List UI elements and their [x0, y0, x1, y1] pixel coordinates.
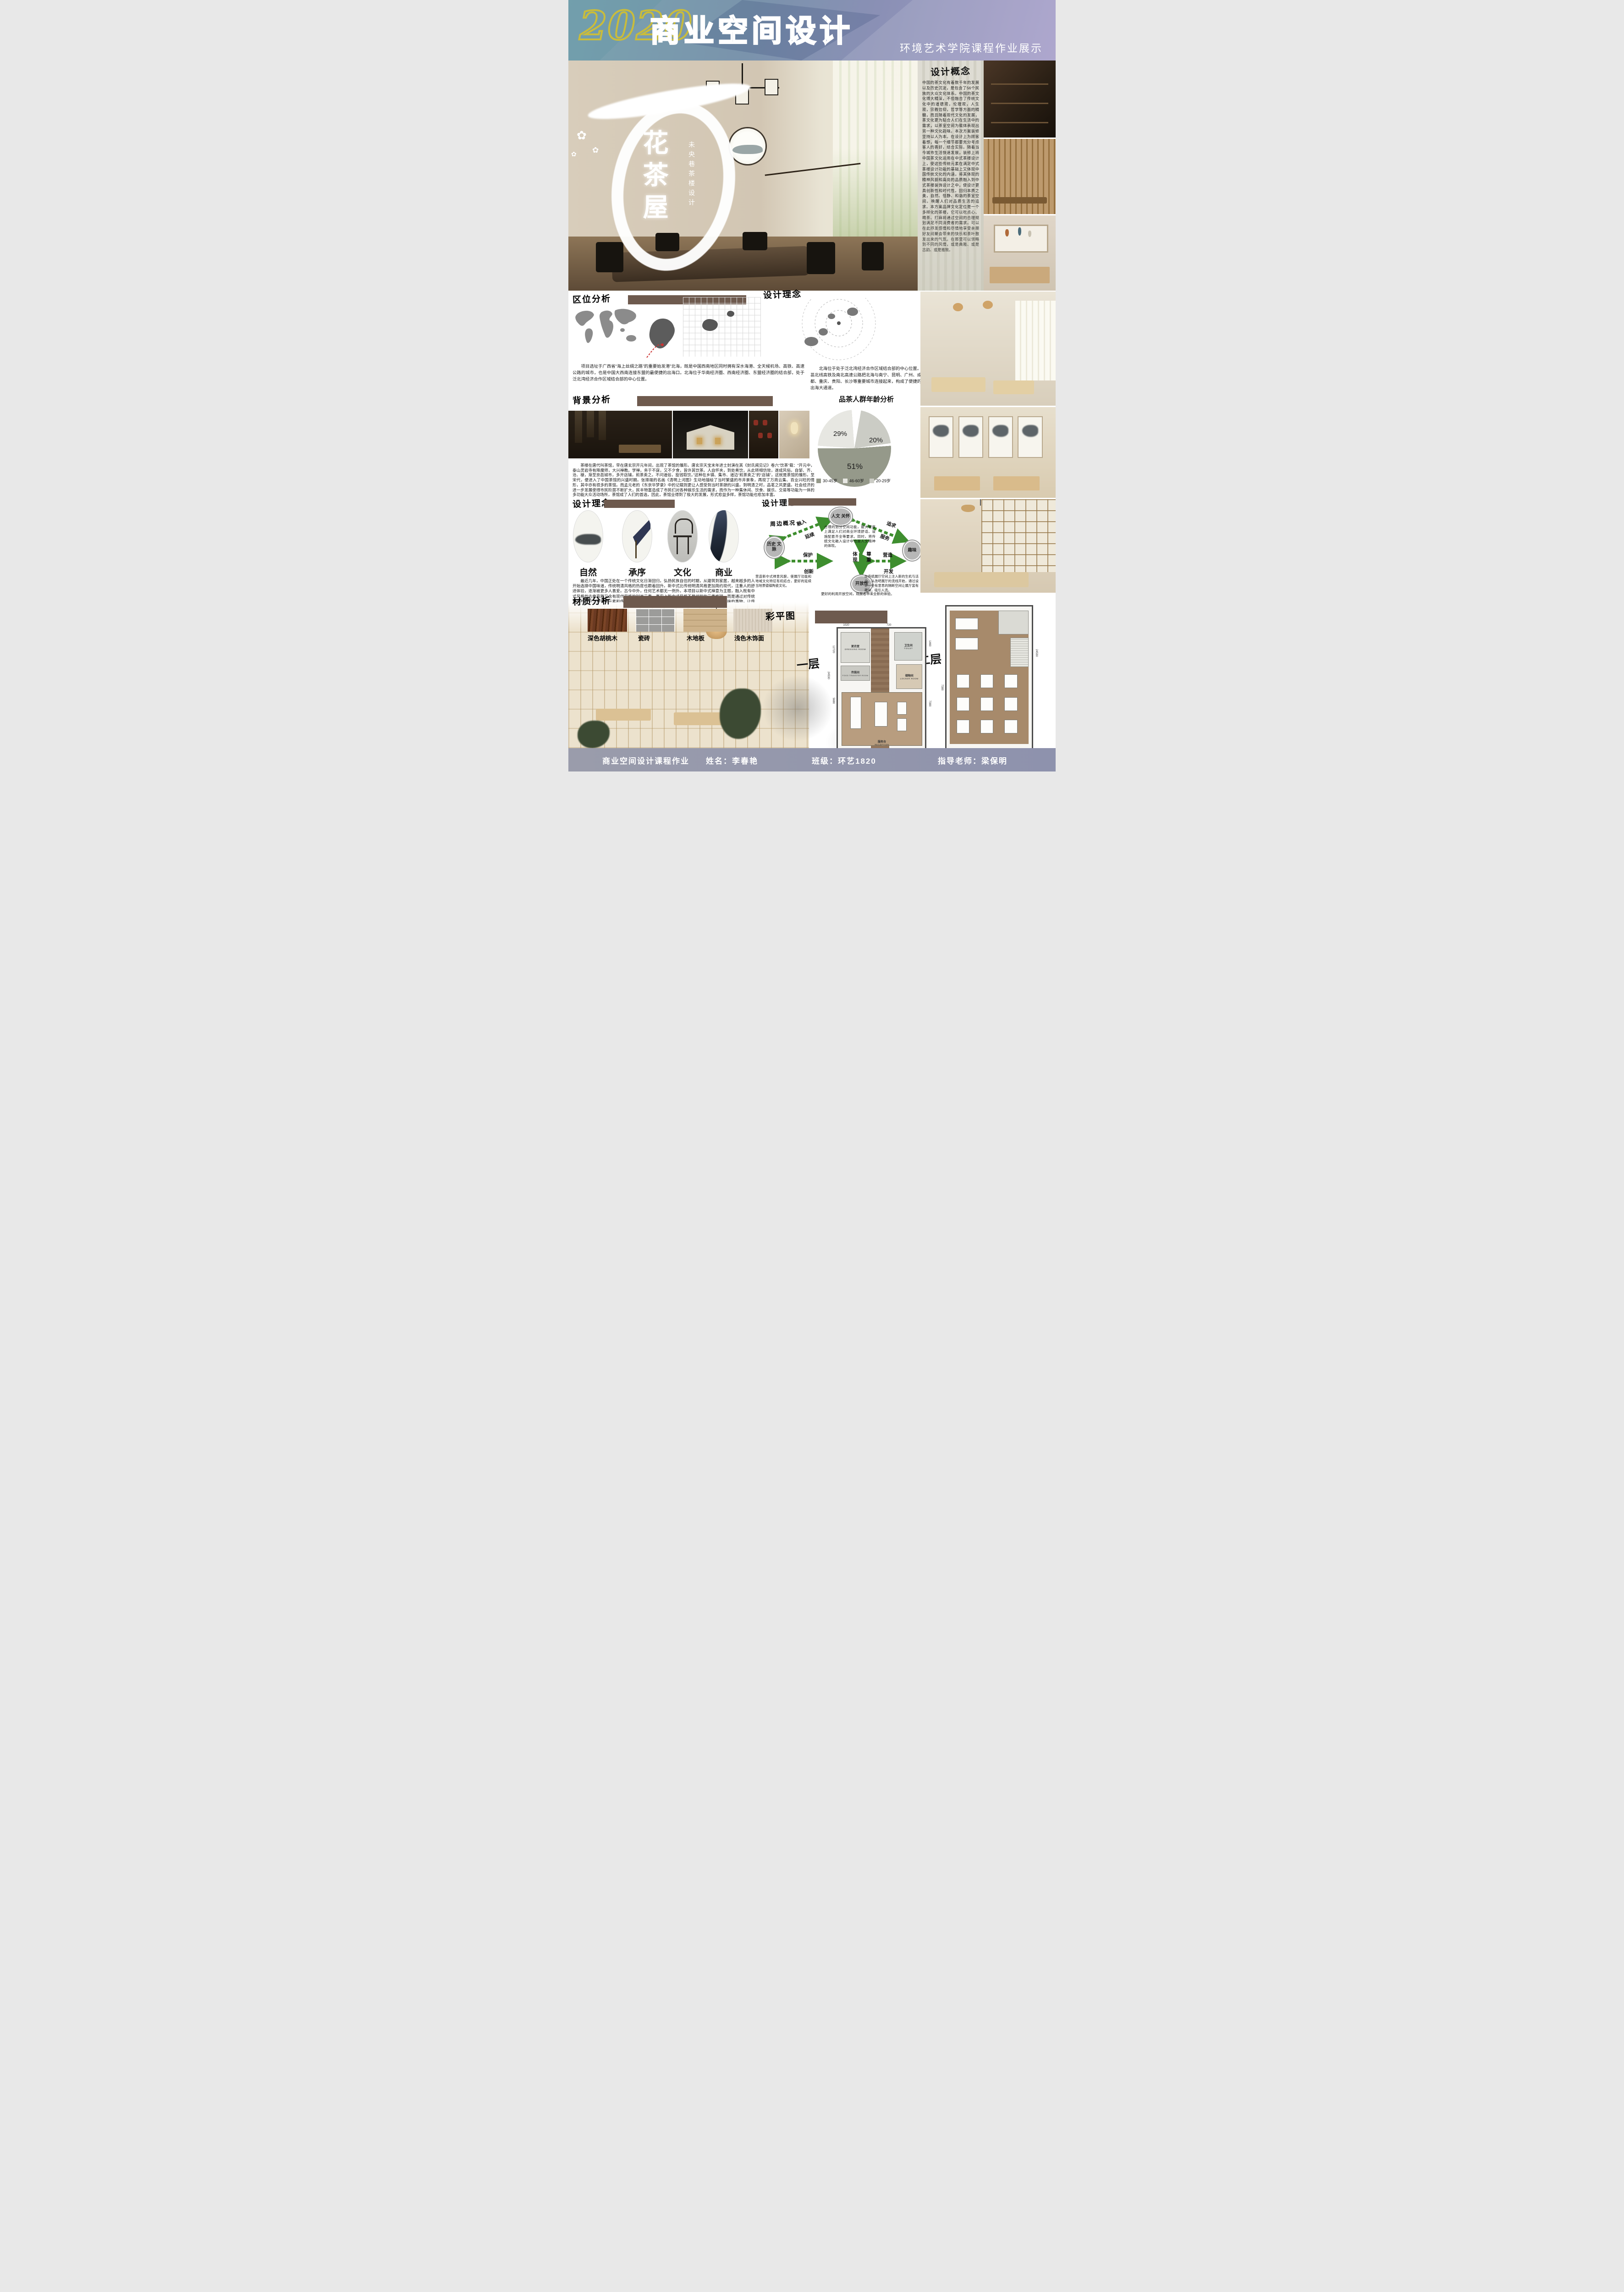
footer-student-name: 姓名：李春艳 [706, 755, 758, 766]
dimension: 24530 [827, 672, 830, 679]
hanging-banner [599, 411, 606, 440]
region-grid-map [683, 297, 761, 357]
section-heading-materials: 材质分析 [573, 594, 611, 608]
photo-teahouse-hall [568, 411, 672, 458]
diagram-left-note: 营造新中式禅意风貌，使展厅功能和地域文化特征有机结合，更好的延续当地景德镇陶瓷文… [755, 574, 811, 588]
lit-window [697, 438, 702, 444]
room-locker: 储物间 LOCKER ROOM [896, 664, 922, 689]
dimension: 24530 [1035, 649, 1038, 657]
legend-label: 30-45岁 [823, 478, 837, 484]
pie-chart-age-analysis [818, 410, 891, 487]
chair-silhouette [677, 537, 678, 554]
concept-oval-culture [667, 510, 698, 562]
header-banner: 2020 商业空间设计 环境艺术学院课程作业展示 [568, 0, 1056, 61]
design-relation-diagram: 设计理念 周边概况 人文 关怀 历史 文脉 趣味 开放性 融入 延续 追求 服务 [752, 494, 919, 598]
footer-teacher: 指导老师：梁保明 [938, 755, 1007, 766]
counter [990, 267, 1050, 283]
photo-wall-sconce [779, 411, 809, 458]
material-swatch-tile [636, 609, 675, 632]
table [934, 476, 980, 491]
material-label: 浅色木饰面 [734, 634, 764, 642]
floor1-label: 一层 [796, 654, 820, 673]
plan-table [1004, 697, 1017, 711]
photo-tea-jar-shelf [749, 411, 778, 458]
arrow-label: 尊重 [865, 551, 872, 563]
room-toilet: 卫生间 TOILET [894, 632, 922, 661]
plan-table [875, 702, 888, 727]
table [992, 197, 1047, 204]
legend-swatch [816, 479, 821, 483]
pie-value-20: 20% [869, 436, 883, 444]
chair-silhouette [675, 518, 693, 534]
poster-title: 商业空间设计 [650, 6, 853, 50]
arrow-label: 开发 [884, 568, 893, 575]
ink-art-panel [988, 416, 1013, 458]
chair-silhouette [673, 535, 692, 537]
photo-night-exterior [673, 411, 748, 458]
tea-jar [758, 433, 763, 438]
room-name-en: DRESSING ROOM [845, 648, 866, 650]
flower-icon: ✿ [577, 128, 587, 143]
dimension: 720 [886, 624, 891, 627]
material-label: 深色胡桃木 [588, 634, 617, 642]
section-heading-background: 背景分析 [573, 393, 611, 407]
table [619, 445, 661, 453]
chair-silhouette [688, 537, 689, 554]
plan-table [957, 697, 969, 711]
vase [1005, 229, 1009, 237]
oval-label-order: 承序 [622, 566, 652, 578]
arrow-label: 保护 [803, 551, 813, 558]
room-name-en: TOILET [904, 647, 913, 650]
diagram-center-text: 合理的划分空间功能，最大程度上满足人们对商业环境舒适、设施配套齐全等要求。同时，… [824, 525, 875, 548]
poster-subtitle: 环境艺术学院课程作业展示 [900, 39, 1043, 55]
chair [807, 242, 835, 274]
tea-jar [767, 433, 772, 438]
design-concept-text: 中国的茶文化有着数千年的发展以及历史沉淀，是包含了56个民族的大众文化体系。中国… [918, 78, 984, 255]
lit-window [715, 438, 721, 444]
dimension: 12720 [832, 645, 835, 653]
legend-item: 20-29岁 [870, 478, 891, 484]
photo-tearoom-art-wall [920, 407, 1056, 498]
table [931, 377, 985, 392]
photo-lattice-shelf-room [920, 499, 1056, 593]
diagram-bottom-note: 更好的利用开放空间，观展者带来全新的体验。 [819, 592, 897, 596]
pendant-lamp [983, 301, 993, 309]
footer-course: 商业空间设计课程作业 [602, 755, 689, 766]
pole [635, 540, 637, 558]
shelf-line [991, 83, 1049, 85]
ink-mountain [732, 145, 763, 154]
room-name: 卫生间 [904, 643, 913, 647]
lattice-shelf [981, 499, 1056, 572]
room [998, 611, 1028, 634]
shelf-line [991, 122, 1049, 123]
legend-item: 30-45岁 [816, 478, 837, 484]
china-map [643, 315, 682, 363]
floor1-plan: 更衣室 DRESSING ROOM 卫生间 TOILET 传菜间 FOOD TR… [837, 627, 926, 749]
room-name: 更衣室 [851, 644, 859, 648]
footer-class: 班级：环艺1820 [812, 755, 876, 766]
node-historic-context: 历史 文脉 [765, 537, 784, 558]
dimension: 1020 [843, 624, 849, 627]
oval-label-nature: 自然 [573, 566, 603, 578]
hero-photo-tearoom: ✿ ✿ ✿ 花茶屋 未央巷茶楼设计 [568, 61, 918, 291]
dimension: 7390 [928, 700, 931, 706]
world-map [571, 305, 641, 361]
pendant-lamp [953, 303, 963, 311]
location-paragraph-left: 项目选址于广西省“海上丝绸之路”的重要始发港”北海，既是中国西南地区同时拥有深水… [573, 364, 804, 383]
design-concept-panel: 设计概念 中国的茶文化有着数千年的发展以及历史沉淀，是包含了56个民族的大众文化… [918, 61, 984, 291]
poster: 2020 商业空间设计 环境艺术学院课程作业展示 ✿ ✿ ✿ 花茶屋 未央巷茶楼… [568, 0, 1056, 771]
arrow-label: 营造 [883, 551, 892, 558]
heading-bar [623, 596, 727, 608]
design-concept-heading: 设计概念 [918, 63, 984, 78]
radial-rings-diagram [784, 298, 887, 361]
arrow-label: 创新 [804, 568, 814, 575]
photo-dark-tea-shelf [984, 61, 1056, 138]
room-dressing: 更衣室 DRESSING ROOM [841, 632, 870, 663]
province-shape [702, 319, 718, 331]
floor2-plan: 24530 7390 [945, 605, 1033, 749]
tea-jar [754, 420, 758, 425]
node-humanistic-care: 人文 关怀 [829, 507, 852, 526]
background-paragraph: 茶楼在唐代叫茶馆，早在唐玄宗开元年间，出现了茶馆的雏形。唐玄宗天宝末年进士封演在… [573, 463, 815, 497]
heading-bar [604, 500, 675, 508]
ink-art-panel [958, 416, 983, 458]
flower-icon: ✿ [592, 146, 599, 155]
plan-table [850, 697, 862, 729]
ink-wash [761, 674, 834, 743]
material-label: 瓷砖 [638, 634, 650, 642]
table [934, 572, 1029, 587]
ink-art-panel [929, 416, 953, 458]
legend-swatch [870, 479, 874, 483]
table [596, 709, 651, 721]
house [687, 425, 735, 450]
plan-table [980, 697, 993, 711]
legend-item: 46-60岁 [843, 478, 864, 484]
footer-bar: 商业空间设计课程作业 姓名：李春艳 班级：环艺1820 指导老师：梁保明 [568, 748, 1056, 771]
hero-window-foliage [833, 148, 918, 239]
dimension: 1460 [928, 640, 931, 646]
plan-table [955, 638, 978, 650]
dimension: 5680 [832, 698, 835, 704]
tea-jar [763, 420, 767, 425]
ink-mountain [575, 534, 600, 545]
plan-table [980, 720, 993, 733]
diagram-right-note: 在传统展厅空间上注入新的生机与活力，从改吧展厅的流线开始，通过设计一些有意思的隔… [864, 574, 919, 592]
lamp-shade [765, 79, 778, 95]
dimension: 7390 [941, 684, 943, 690]
hanging-banner [575, 411, 582, 443]
heading-bar [637, 396, 773, 406]
legend-swatch [843, 479, 848, 483]
table [993, 380, 1034, 394]
sconce-light [791, 422, 798, 434]
pendant-lamp [961, 505, 975, 512]
plan-table [957, 674, 969, 688]
location-paragraph-right: 北海位于处于泛北湾经济合作区域结合部的中心位置。邕北线高铁及南北高速公路把北海与… [810, 366, 921, 391]
plan-table [980, 674, 993, 688]
stairs [1010, 638, 1028, 667]
section-heading-location: 区位分析 [573, 292, 611, 306]
plan-table [897, 718, 907, 731]
chair [743, 232, 767, 250]
oval-label-culture: 文化 [667, 566, 698, 578]
material-swatch-wood-floor [683, 609, 727, 632]
arrow-label: 体现 [852, 551, 859, 563]
node-interest: 趣味 [903, 540, 921, 561]
plan-table [957, 720, 969, 733]
table [993, 476, 1039, 491]
pie-value-51: 51% [847, 462, 863, 471]
room-name: 服务台 [842, 739, 922, 744]
shelf-line [991, 103, 1049, 104]
plan-table [955, 618, 978, 630]
project-subtitle-vertical: 未央巷茶楼设计 [687, 141, 696, 209]
chair [596, 242, 623, 272]
concept-oval-nature [573, 510, 603, 562]
heading-bar [815, 611, 887, 623]
room-name-en: RECEPTION [842, 744, 922, 746]
ink-art-panel [1018, 416, 1042, 458]
photo-wood-slat-room [984, 139, 1056, 214]
room-name-en: FOOD TRANSFER ROOM [842, 674, 869, 677]
lamp-cord [980, 499, 981, 506]
material-label: 木地板 [687, 634, 705, 642]
plan-table [1004, 720, 1017, 733]
photo-tea-cabinet-room [984, 215, 1056, 291]
flower-icon: ✿ [571, 150, 577, 158]
pie-value-29: 29% [833, 430, 847, 438]
legend-label: 20-29岁 [876, 478, 891, 484]
oval-label-commerce: 商业 [709, 566, 739, 578]
hanging-banner [587, 411, 594, 437]
concept-oval-order [622, 510, 652, 562]
pie-chart-title: 品茶人群年龄分析 [839, 394, 930, 404]
round-wall-art [730, 128, 765, 164]
plan-table [1004, 674, 1017, 688]
plan-table [897, 702, 907, 715]
room-name-en: LOCKER ROOM [900, 678, 919, 680]
project-title-vertical: 花茶屋 [635, 129, 672, 226]
section-heading-plan: 彩平图 [765, 608, 796, 623]
province-shape [727, 311, 734, 317]
window [1015, 301, 1056, 380]
chair [862, 242, 884, 270]
room-food-transfer: 传菜间 FOOD TRANSFER ROOM [841, 666, 870, 681]
pie-legend: 30-45岁 46-60岁 20-29岁 [816, 478, 910, 484]
legend-label: 46-60岁 [849, 478, 864, 484]
ink-texture [709, 510, 731, 562]
room-name: 储物间 [905, 673, 914, 678]
photo-tearoom-window [920, 292, 1056, 406]
room-name: 传菜间 [851, 670, 859, 674]
material-swatch-walnut [588, 609, 627, 632]
concept-oval-commerce [709, 510, 739, 562]
